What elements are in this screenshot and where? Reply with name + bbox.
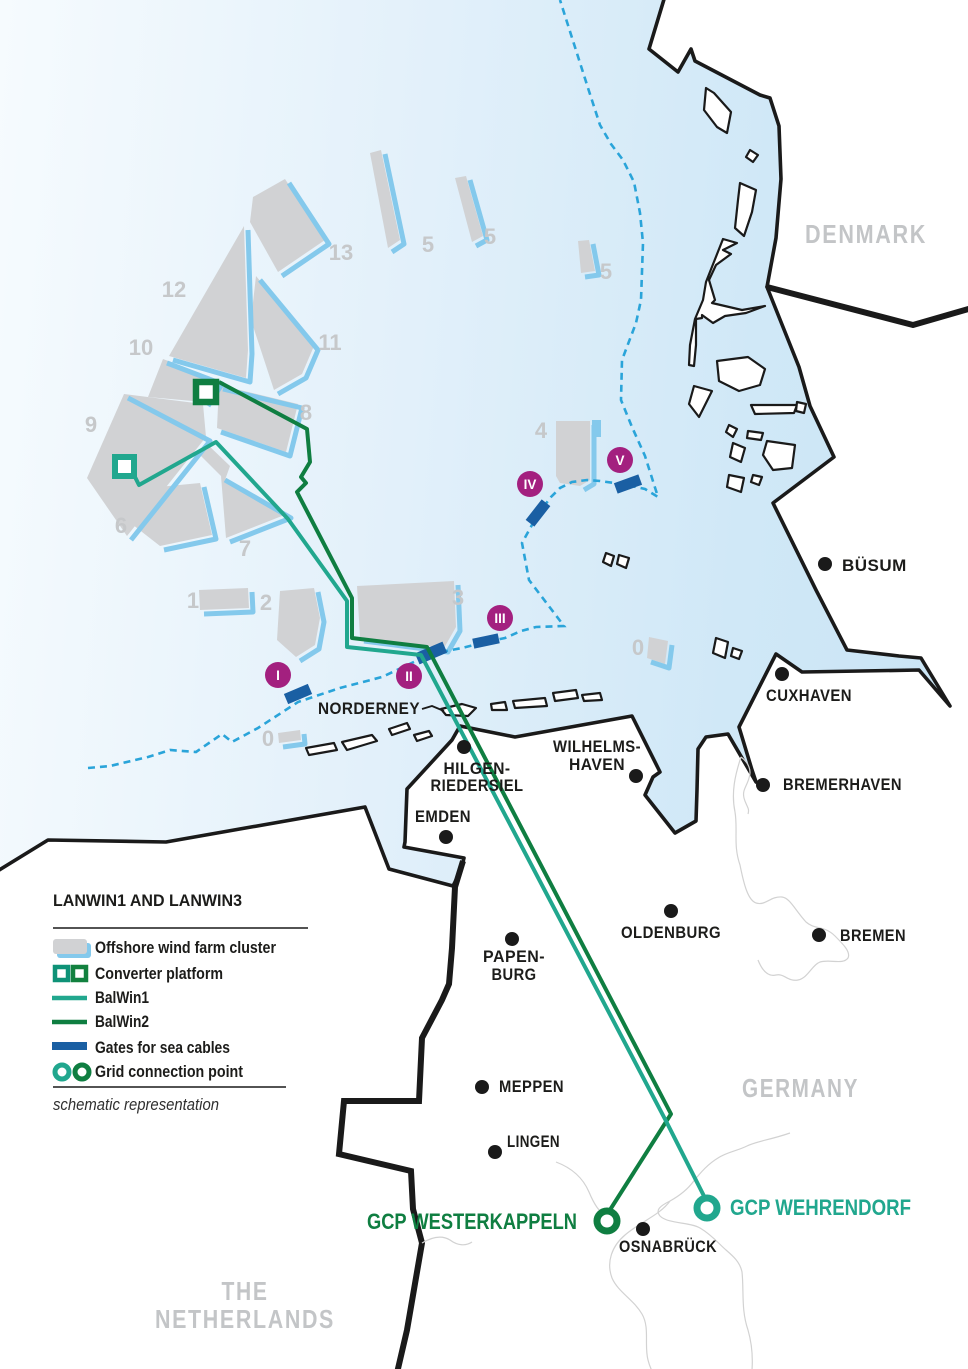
svg-text:Converter platform: Converter platform [95, 964, 223, 983]
svg-text:12: 12 [162, 277, 186, 302]
svg-text:DENMARK: DENMARK [805, 219, 927, 249]
svg-text:Grid connection point: Grid connection point [95, 1062, 243, 1081]
svg-text:schematic representation: schematic representation [53, 1096, 219, 1114]
svg-text:RIEDERSIEL: RIEDERSIEL [431, 776, 524, 795]
svg-text:BalWin2: BalWin2 [95, 1012, 149, 1031]
svg-text:EMDEN: EMDEN [415, 807, 471, 826]
svg-text:9: 9 [85, 412, 97, 437]
svg-text:CUXHAVEN: CUXHAVEN [766, 686, 852, 705]
svg-text:5: 5 [484, 224, 496, 249]
svg-text:5: 5 [422, 232, 434, 257]
svg-text:2: 2 [260, 590, 272, 615]
svg-text:GCP WESTERKAPPELN: GCP WESTERKAPPELN [367, 1209, 577, 1234]
svg-text:7: 7 [239, 536, 251, 561]
svg-text:II: II [405, 669, 413, 684]
svg-text:V: V [615, 453, 624, 468]
svg-text:BÜSUM: BÜSUM [842, 556, 907, 575]
svg-text:Offshore wind farm cluster: Offshore wind farm cluster [95, 938, 276, 957]
svg-text:GCP WEHRENDORF: GCP WEHRENDORF [730, 1195, 911, 1220]
svg-text:LINGEN: LINGEN [507, 1132, 560, 1151]
svg-text:0: 0 [262, 726, 274, 751]
svg-text:BalWin1: BalWin1 [95, 988, 149, 1007]
svg-text:13: 13 [329, 240, 353, 265]
svg-text:PAPEN-: PAPEN- [483, 947, 545, 966]
svg-text:HAVEN: HAVEN [569, 755, 625, 774]
svg-text:4: 4 [535, 418, 548, 443]
svg-text:NORDERNEY: NORDERNEY [318, 699, 420, 718]
svg-text:I: I [276, 668, 280, 683]
svg-text:NETHERLANDS: NETHERLANDS [155, 1304, 335, 1334]
svg-text:IV: IV [524, 477, 537, 492]
svg-text:GERMANY: GERMANY [742, 1073, 859, 1103]
svg-text:10: 10 [129, 335, 153, 360]
svg-text:BREMERHAVEN: BREMERHAVEN [783, 775, 902, 794]
svg-text:8: 8 [300, 400, 312, 425]
svg-text:OLDENBURG: OLDENBURG [621, 923, 721, 942]
svg-text:3: 3 [452, 585, 464, 610]
svg-text:III: III [494, 611, 505, 626]
svg-text:MEPPEN: MEPPEN [499, 1077, 564, 1096]
svg-text:BURG: BURG [492, 965, 537, 984]
svg-text:1: 1 [187, 588, 199, 613]
svg-text:0: 0 [632, 635, 644, 660]
svg-text:OSNABRÜCK: OSNABRÜCK [619, 1237, 717, 1256]
svg-text:11: 11 [318, 330, 341, 355]
svg-text:Gates for sea cables: Gates for sea cables [95, 1038, 230, 1057]
svg-text:LANWIN1 AND LANWIN3: LANWIN1 AND LANWIN3 [53, 891, 242, 910]
svg-text:5: 5 [600, 259, 612, 284]
svg-text:6: 6 [115, 513, 127, 538]
svg-text:WILHELMS-: WILHELMS- [553, 737, 641, 756]
svg-text:THE: THE [222, 1276, 269, 1306]
svg-text:BREMEN: BREMEN [840, 926, 906, 945]
